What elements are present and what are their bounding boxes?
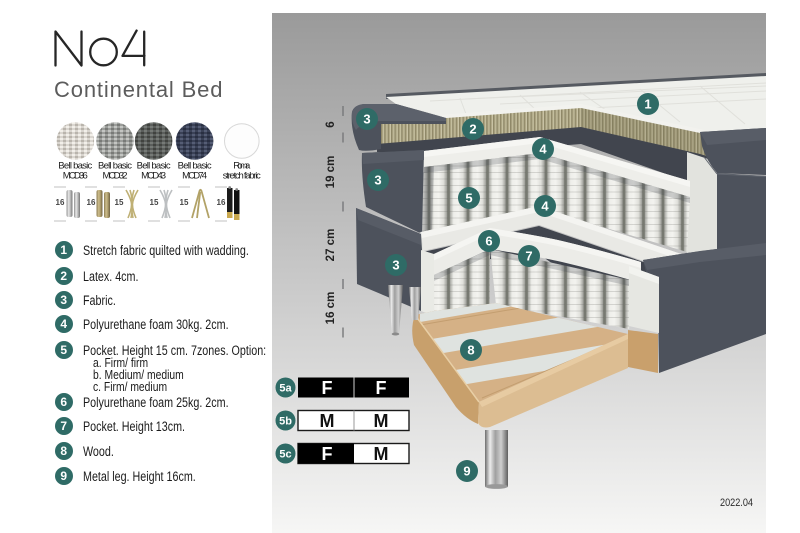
- svg-text:M: M: [320, 411, 335, 431]
- svg-text:5c: 5c: [279, 449, 291, 461]
- svg-text:5: 5: [465, 191, 472, 206]
- svg-text:M: M: [374, 411, 389, 431]
- svg-text:2: 2: [469, 122, 476, 137]
- svg-text:8: 8: [467, 343, 474, 358]
- svg-text:3: 3: [374, 173, 381, 188]
- svg-text:4: 4: [539, 142, 547, 157]
- svg-text:F: F: [322, 378, 333, 398]
- svg-text:M: M: [374, 444, 389, 464]
- svg-text:5b: 5b: [279, 416, 292, 428]
- svg-text:16 cm: 16 cm: [325, 292, 337, 325]
- svg-text:F: F: [322, 444, 333, 464]
- svg-text:9: 9: [463, 464, 470, 479]
- svg-text:6: 6: [485, 234, 492, 249]
- svg-text:1: 1: [644, 97, 651, 112]
- svg-text:3: 3: [363, 112, 370, 127]
- svg-text:6: 6: [325, 121, 337, 127]
- svg-text:4: 4: [541, 199, 549, 214]
- svg-text:2022.04: 2022.04: [720, 497, 753, 509]
- svg-text:5a: 5a: [279, 383, 292, 395]
- svg-text:27 cm: 27 cm: [325, 229, 337, 262]
- svg-text:F: F: [376, 378, 387, 398]
- svg-text:7: 7: [525, 249, 532, 264]
- svg-text:19 cm: 19 cm: [325, 156, 337, 189]
- svg-text:3: 3: [392, 258, 399, 273]
